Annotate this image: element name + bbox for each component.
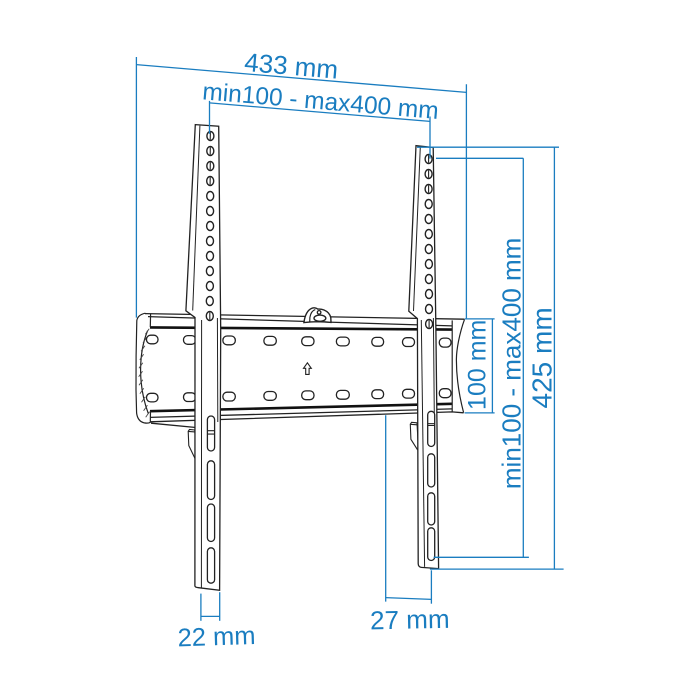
svg-text:22 mm: 22 mm	[177, 622, 256, 652]
svg-text:100 mm: 100 mm	[464, 320, 492, 410]
svg-text:min100 - max400 mm: min100 - max400 mm	[496, 238, 526, 489]
svg-text:425 mm: 425 mm	[526, 307, 557, 408]
svg-text:27 mm: 27 mm	[370, 604, 450, 636]
